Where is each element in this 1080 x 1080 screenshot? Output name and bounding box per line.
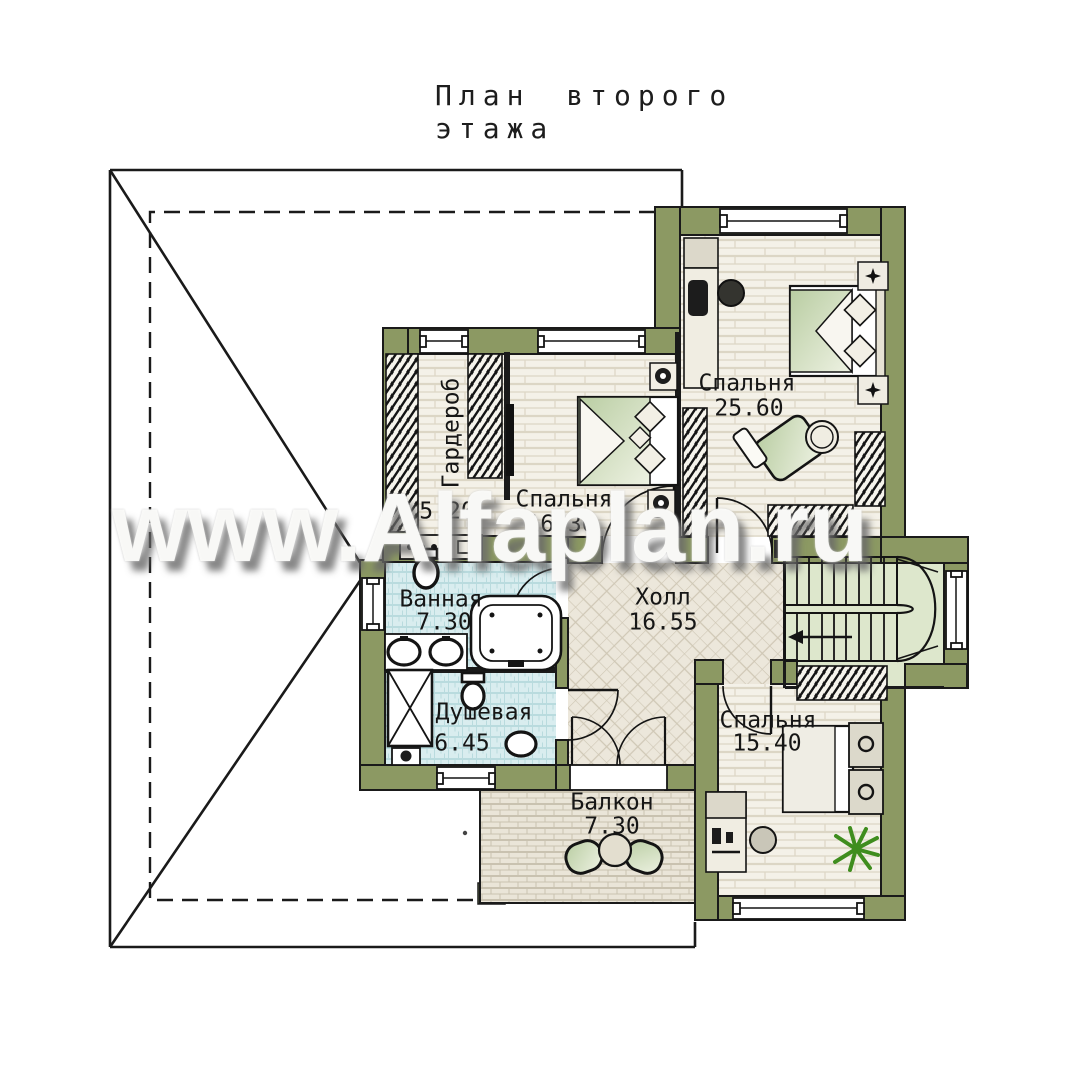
- room-label-hall-name: Холл: [635, 587, 690, 610]
- room-label-bathroom-name: Ванная: [399, 589, 482, 612]
- room-label-bedroom-large-area: 25.60: [714, 398, 783, 421]
- window-bathroom: [362, 578, 384, 630]
- desk-chair-icon-small: [750, 827, 776, 853]
- tv-icon: [506, 404, 514, 476]
- double-sink-icon: [385, 634, 467, 670]
- room-label-bedroom-small-name: Спальня: [720, 710, 817, 733]
- room-label-bedroom-large-name: Спальня: [699, 373, 796, 396]
- room-label-shower-area: 6.45: [434, 733, 489, 756]
- page-title: План второго этажа: [435, 79, 865, 145]
- room-label-balcony-name: Балкон: [570, 792, 653, 815]
- watermark: www.Alfaplan.ru: [112, 472, 868, 584]
- room-label-balcony-area: 7.30: [584, 816, 639, 839]
- floor-plan-page: План второго этажа Спальня 25.60 Гардеро…: [0, 0, 1080, 1080]
- window-wardrobe: [420, 330, 468, 353]
- window-stairs: [946, 571, 967, 649]
- desk: [684, 238, 718, 268]
- stray-dot: [463, 831, 467, 835]
- desk-chair-icon: [688, 280, 708, 316]
- bathtub-icon: [471, 596, 561, 670]
- room-label-bathroom-area: 7.30: [416, 612, 471, 635]
- room-label-shower-name: Душевая: [436, 702, 533, 725]
- shower-cabin-icon: [388, 670, 432, 746]
- window-bedroom-small: [733, 898, 864, 919]
- window-shower: [437, 767, 495, 789]
- washer-icon: [392, 748, 420, 765]
- sink-icon-shower: [506, 732, 536, 756]
- bed-icon-large: [790, 284, 885, 378]
- window-bedroom-middle: [538, 330, 645, 353]
- room-label-bedroom-small-area: 15.40: [732, 733, 801, 756]
- room-label-hall-area: 16.55: [628, 612, 697, 635]
- stool-icon: [718, 280, 744, 306]
- window-bedroom-large: [720, 209, 847, 233]
